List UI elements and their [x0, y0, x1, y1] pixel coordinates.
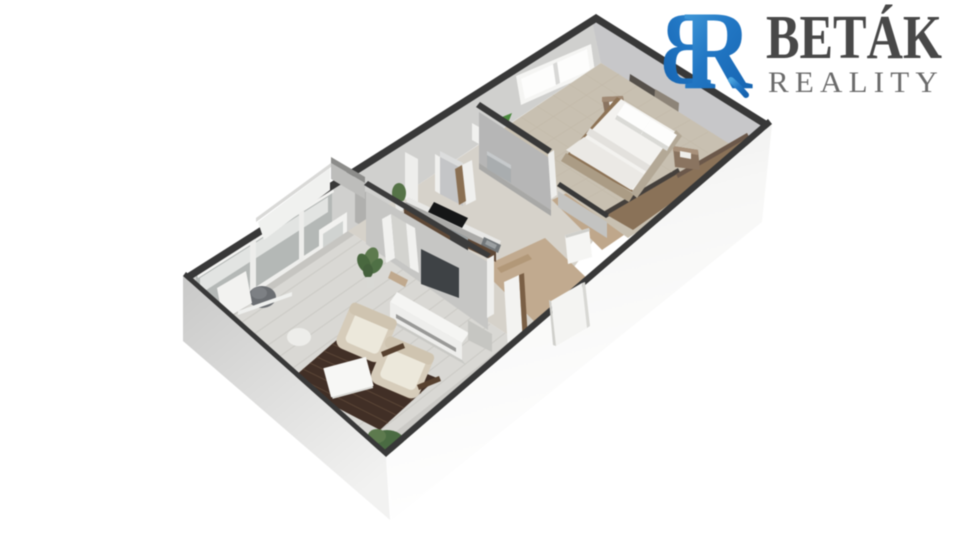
svg-text:REALITY: REALITY — [768, 66, 944, 99]
svg-text:BETÁK: BETÁK — [766, 4, 942, 72]
svg-text:R: R — [683, 0, 753, 113]
